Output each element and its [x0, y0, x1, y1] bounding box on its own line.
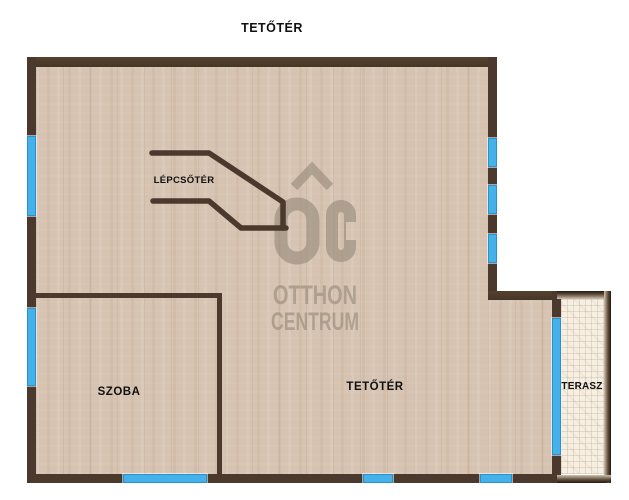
room-label-szoba: SZOBA [98, 386, 141, 398]
room-label-stairwell: LÉPCSŐTÉR [154, 175, 215, 186]
stairwell-lower-edge [153, 201, 286, 228]
stairwell-upper-edge [152, 153, 283, 228]
stairwell-outline [152, 153, 286, 228]
room-label-attic: TETŐTÉR [346, 381, 403, 393]
room-label-terrace: TERASZ [561, 381, 602, 392]
plan-overlay: OTTHON CENTRUM [0, 0, 629, 500]
monogram-letter-c [332, 206, 350, 256]
floor-plan: TETŐTÉR OTTHON CENTR [0, 0, 629, 500]
roof-chevron-icon [294, 168, 330, 187]
otthon-centrum-watermark: OTTHON CENTRUM [271, 168, 359, 336]
watermark-line2: CENTRUM [271, 308, 359, 336]
monogram-letter-o [281, 204, 313, 258]
watermark-line1: OTTHON [273, 280, 357, 310]
